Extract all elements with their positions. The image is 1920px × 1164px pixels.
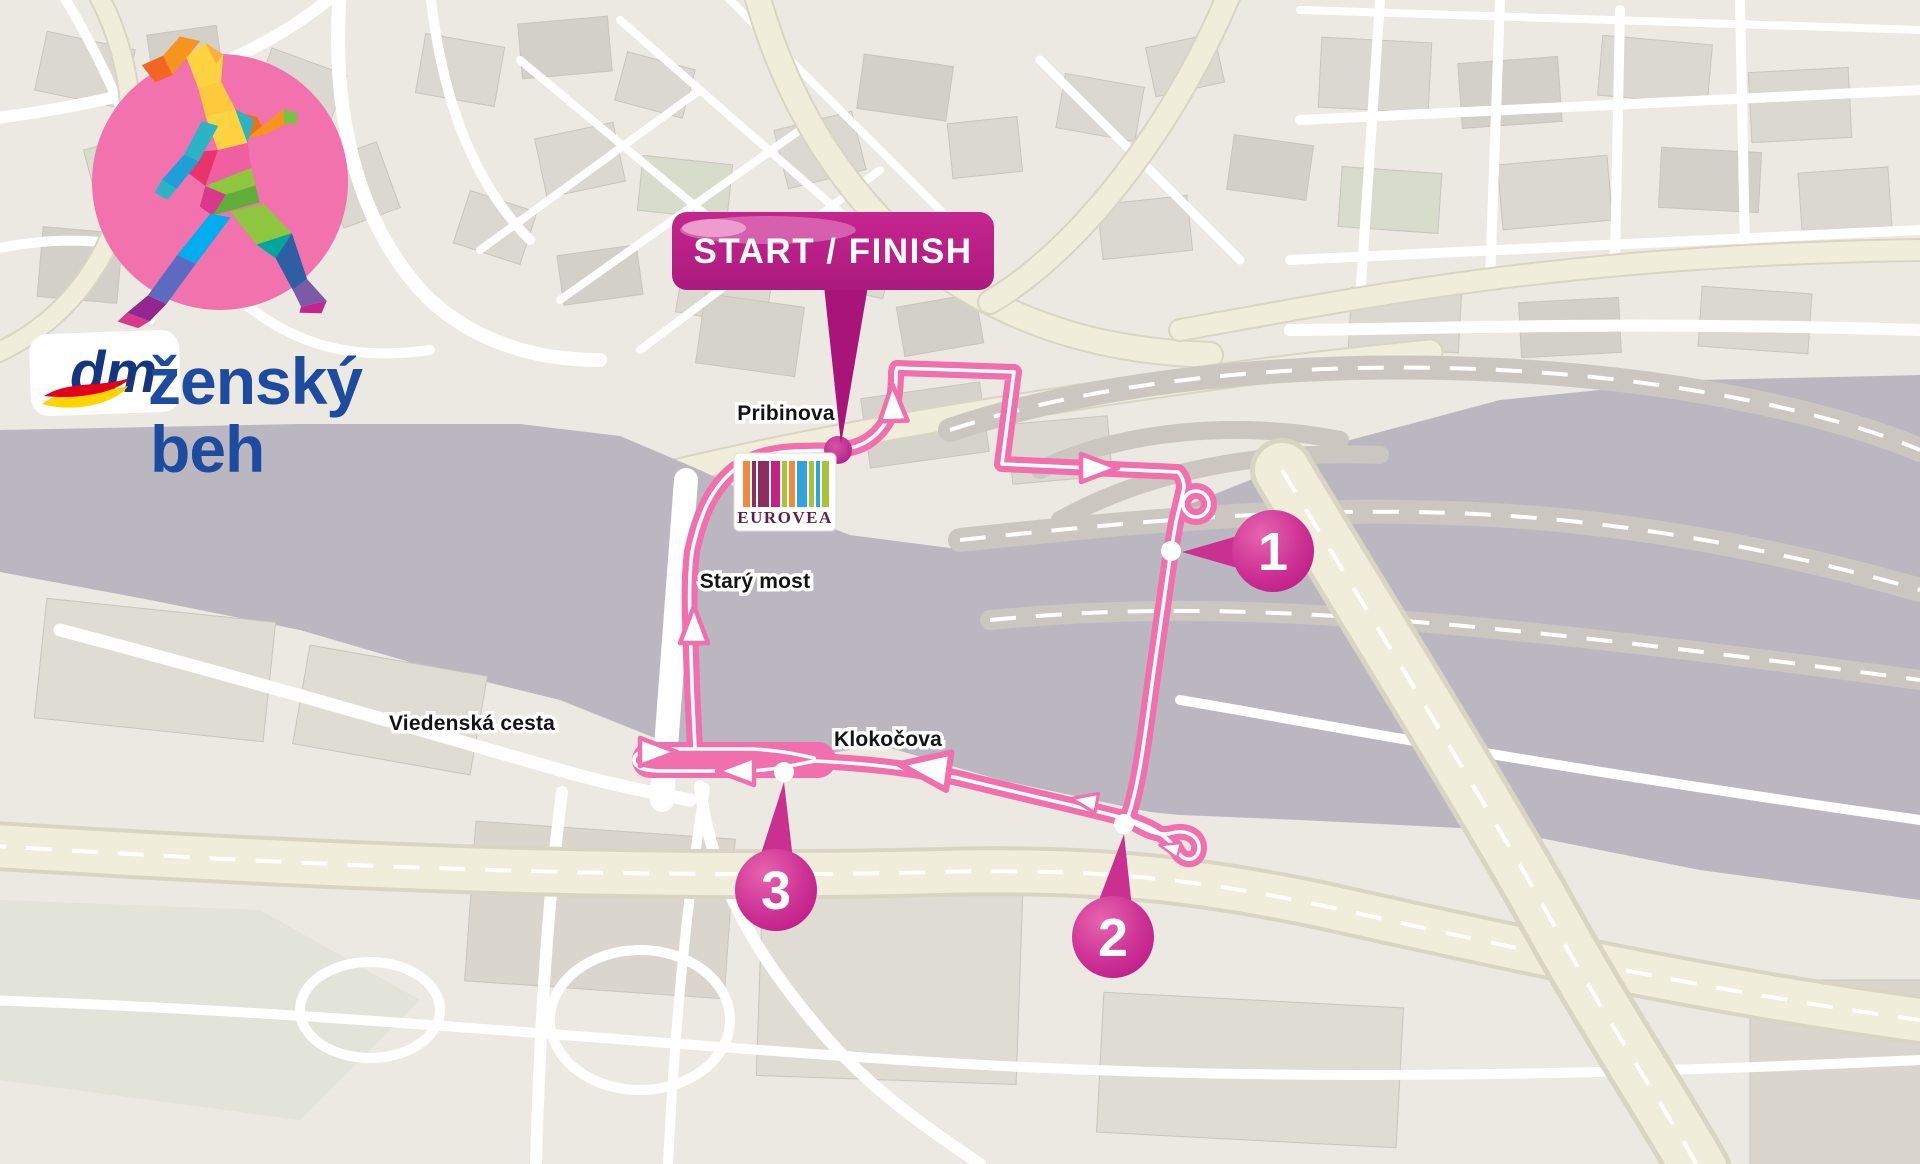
eurovea-stripes-icon: [743, 461, 829, 507]
event-title-line2: beh: [150, 412, 264, 486]
label-pribinova: Pribinova: [737, 402, 835, 425]
label-viedenska-cesta: Viedenská cesta: [389, 712, 555, 735]
km-marker-3-label: 3: [761, 861, 791, 921]
km-marker-1-label: 1: [1258, 522, 1288, 582]
label-stary-most: Starý most: [700, 570, 811, 593]
km-marker-2-label: 2: [1098, 908, 1128, 968]
km-dot-3: [774, 762, 794, 782]
route-map-poster: EUROVEA Pribinova Starý most Viedenská c…: [0, 0, 1920, 1164]
banner-label: START / FINISH: [694, 232, 973, 271]
event-title-line1: ženský: [148, 344, 363, 418]
km-dot-2: [1114, 814, 1134, 834]
km-dot-1: [1161, 541, 1181, 561]
eurovea-label: EUROVEA: [737, 508, 833, 527]
eurovea-logo: EUROVEA: [734, 453, 836, 531]
label-klokocova: Klokočova: [834, 728, 942, 751]
